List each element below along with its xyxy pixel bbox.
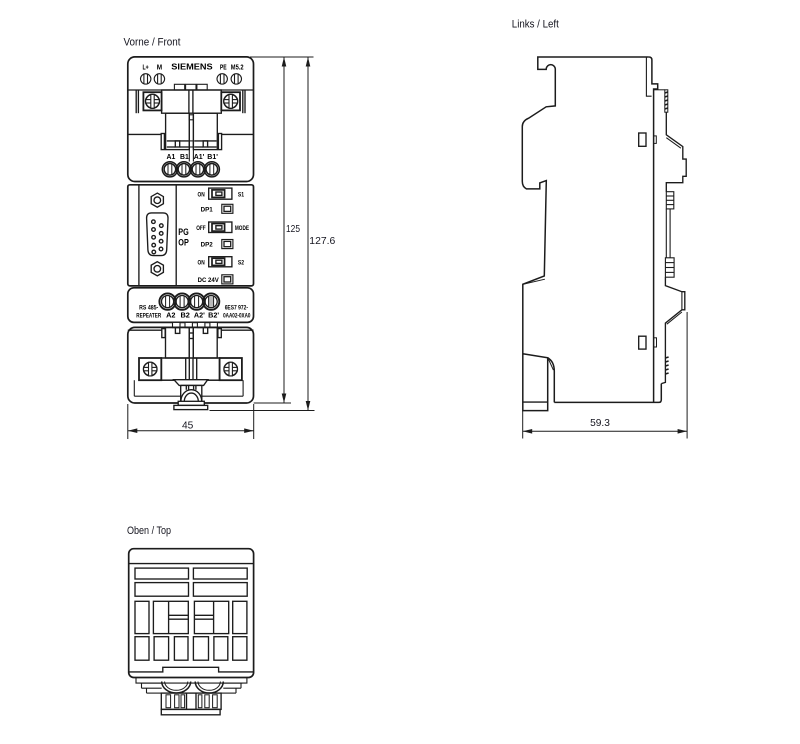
- svg-text:59.3: 59.3: [590, 418, 610, 429]
- svg-text:MODE: MODE: [235, 225, 249, 232]
- svg-text:6ES7 972-: 6ES7 972-: [225, 304, 248, 311]
- svg-text:S1: S1: [238, 191, 245, 198]
- svg-text:Vorne / Front: Vorne / Front: [124, 37, 182, 49]
- svg-text:ON: ON: [198, 191, 206, 198]
- svg-text:Oben / Top: Oben / Top: [127, 525, 171, 537]
- svg-text:A2': A2': [194, 313, 205, 320]
- svg-text:B1: B1: [180, 154, 189, 161]
- svg-text:B2': B2': [208, 313, 219, 320]
- svg-text:OFF: OFF: [196, 225, 206, 232]
- svg-text:A1': A1': [194, 154, 205, 161]
- svg-text:PE: PE: [220, 64, 227, 71]
- svg-text:45: 45: [182, 420, 194, 431]
- svg-text:ON: ON: [198, 260, 206, 267]
- svg-text:DC 24V: DC 24V: [198, 277, 220, 284]
- svg-text:DP2: DP2: [201, 242, 214, 249]
- svg-text:0AA02-0XA0: 0AA02-0XA0: [223, 313, 251, 320]
- svg-text:RS 485-: RS 485-: [139, 304, 158, 311]
- svg-text:125: 125: [286, 224, 300, 235]
- svg-text:DP1: DP1: [201, 207, 214, 214]
- svg-text:A2: A2: [166, 313, 176, 320]
- svg-text:REPEATER: REPEATER: [136, 313, 161, 320]
- svg-text:Links / Left: Links / Left: [512, 18, 560, 30]
- svg-text:M5.2: M5.2: [231, 64, 244, 71]
- svg-text:M: M: [157, 64, 163, 71]
- svg-text:127.6: 127.6: [309, 236, 335, 247]
- svg-text:SIEMENS: SIEMENS: [171, 62, 213, 72]
- svg-text:OP: OP: [178, 238, 189, 248]
- svg-text:B2: B2: [181, 313, 191, 320]
- svg-text:S2: S2: [238, 260, 245, 267]
- svg-text:L+: L+: [143, 64, 149, 71]
- svg-text:B1': B1': [207, 154, 218, 161]
- svg-text:A1: A1: [167, 154, 176, 161]
- svg-text:PG: PG: [178, 227, 189, 237]
